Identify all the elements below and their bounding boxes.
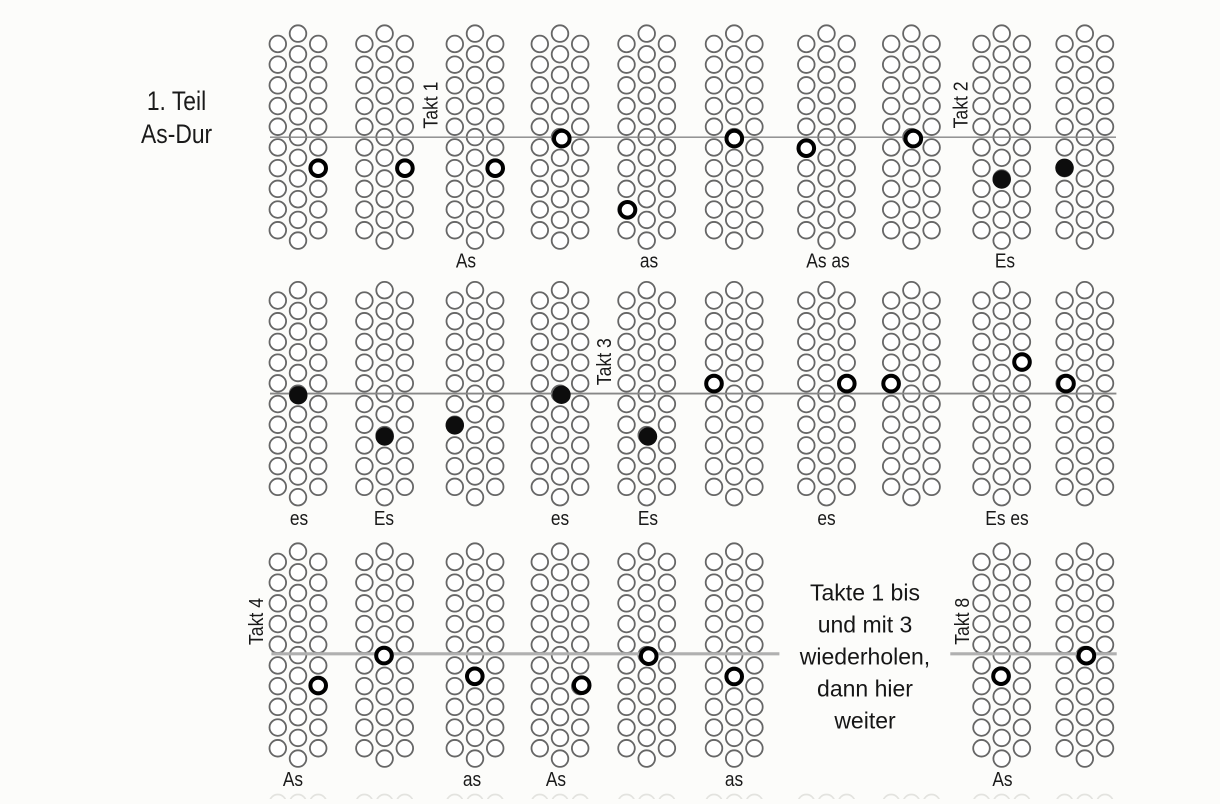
svg-text:Takte 1 bis: Takte 1 bis — [810, 580, 920, 606]
svg-text:Es es: Es es — [985, 507, 1029, 530]
svg-text:Es: Es — [995, 249, 1015, 272]
svg-text:As: As — [546, 768, 566, 791]
svg-text:es: es — [551, 507, 569, 530]
svg-text:Takt 2: Takt 2 — [950, 81, 973, 128]
svg-text:und mit 3: und mit 3 — [818, 612, 913, 638]
svg-text:es: es — [290, 507, 308, 530]
svg-text:As: As — [992, 768, 1012, 791]
svg-text:1. Teil: 1. Teil — [147, 86, 206, 116]
svg-text:as: as — [725, 768, 743, 791]
svg-text:dann hier: dann hier — [817, 675, 913, 701]
svg-text:es: es — [817, 507, 835, 530]
svg-text:As-Dur: As-Dur — [141, 119, 212, 149]
svg-text:As as: As as — [806, 249, 850, 272]
svg-text:Es: Es — [638, 507, 658, 530]
svg-text:Takt 8: Takt 8 — [951, 598, 974, 645]
svg-text:weiter: weiter — [833, 707, 896, 733]
svg-text:Es: Es — [374, 507, 394, 530]
svg-text:Takt 4: Takt 4 — [245, 598, 268, 645]
svg-text:Takt 3: Takt 3 — [593, 338, 616, 385]
svg-text:wiederholen,: wiederholen, — [799, 644, 930, 670]
svg-text:as: as — [640, 249, 658, 272]
svg-text:as: as — [463, 768, 481, 791]
svg-text:As: As — [283, 768, 303, 791]
svg-text:As: As — [456, 249, 476, 272]
svg-text:Takt 1: Takt 1 — [420, 82, 443, 129]
